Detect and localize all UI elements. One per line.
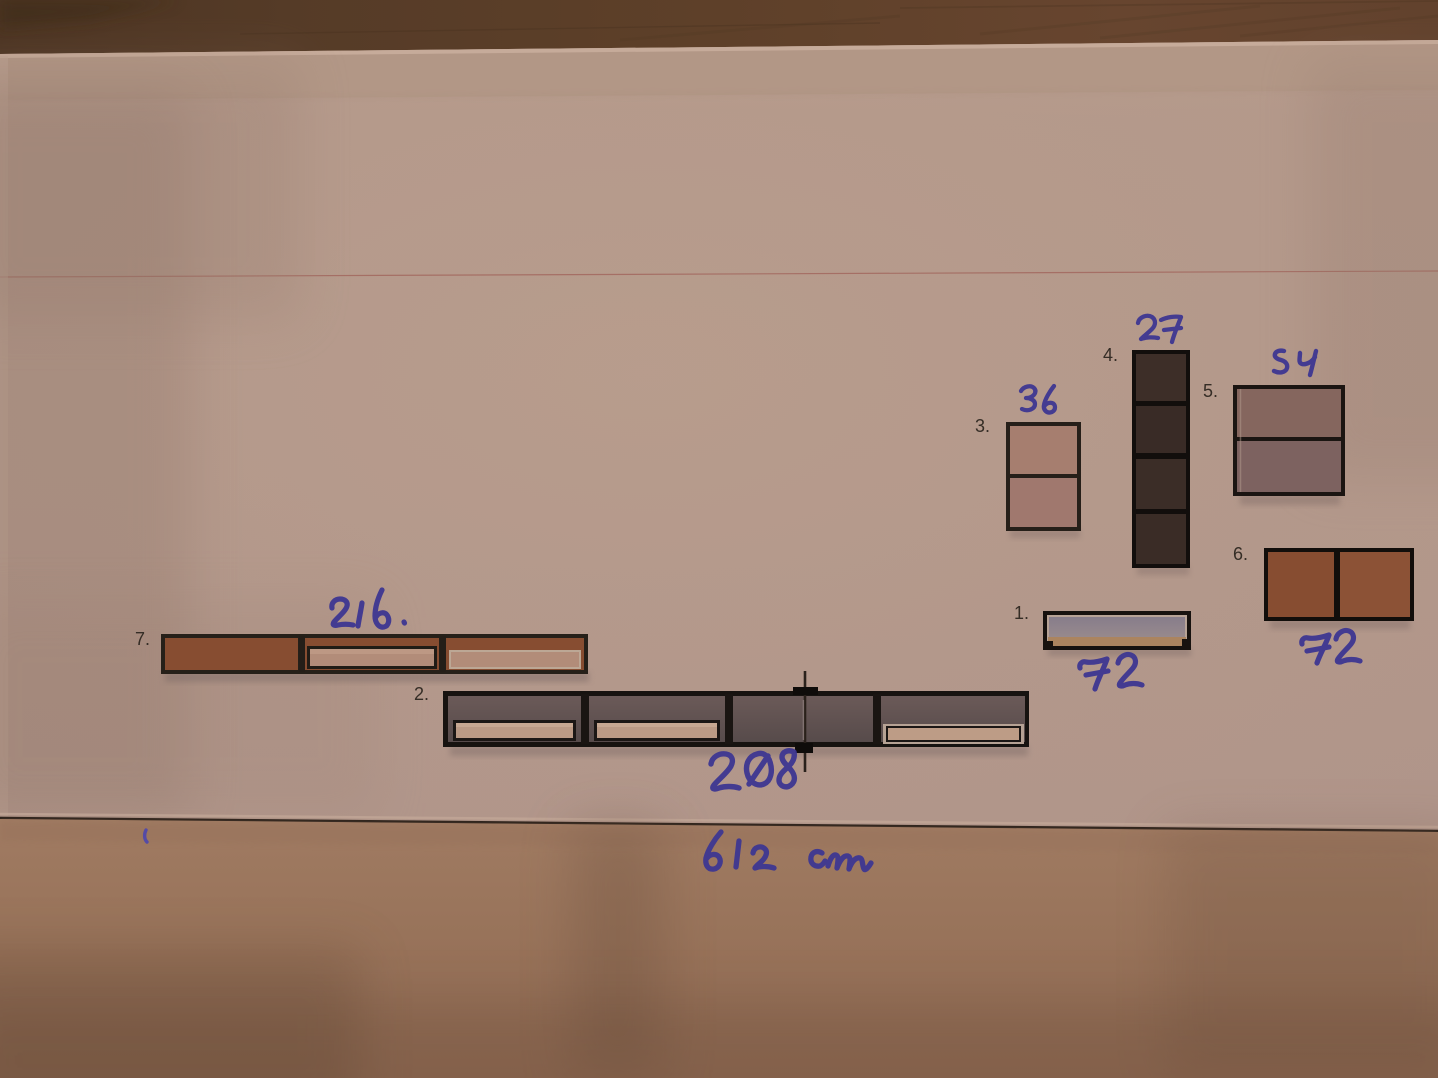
svg-text:7.: 7. [135,629,150,649]
svg-text:4.: 4. [1103,345,1118,365]
svg-text:5.: 5. [1203,381,1218,401]
svg-text:1.: 1. [1014,603,1029,623]
svg-text:3.: 3. [975,416,990,436]
svg-text:6.: 6. [1233,544,1248,564]
svg-text:2.: 2. [414,684,429,704]
